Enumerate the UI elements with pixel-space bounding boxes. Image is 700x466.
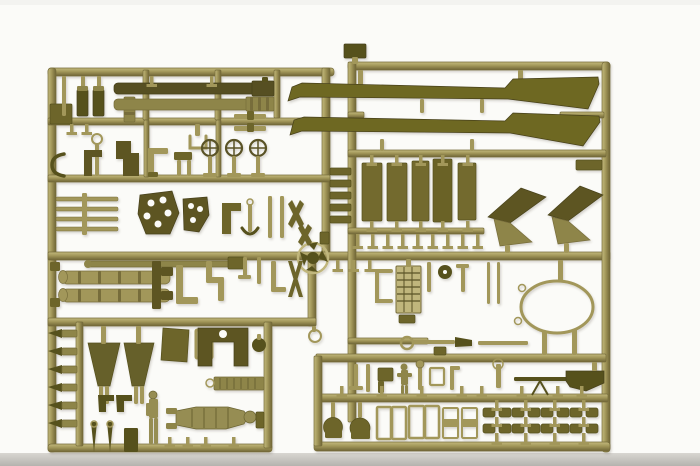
top-tab-stub	[352, 57, 358, 64]
pod-1-band-3	[118, 271, 121, 284]
pod-1-band-4	[138, 271, 141, 284]
small-pin	[427, 262, 431, 292]
ammo-panel-4	[433, 159, 452, 222]
standing-figure-leg-1	[149, 418, 153, 444]
n-clips-rail4-bar-2	[417, 394, 428, 397]
pod-2-band-4	[138, 289, 141, 302]
rowb-figure-torso	[401, 370, 408, 385]
turret-pin	[496, 364, 501, 388]
bottom-rail-clips-stub-0	[168, 437, 172, 445]
standing-figure-torso	[149, 399, 158, 418]
gun-barrel-1	[114, 83, 258, 94]
rowb-pin-1-bar	[349, 386, 363, 390]
panel-stubs-bottom-bar-0	[367, 229, 378, 232]
rowb-seat	[378, 368, 393, 381]
n-clips-rail4-bar-6	[553, 394, 564, 397]
panel-stubs-bottom-stub-4	[466, 221, 470, 229]
rowb-figure-leg-2	[405, 385, 408, 394]
blade-stub-3	[420, 99, 424, 113]
t-clips-subrail-stub-7	[461, 234, 465, 246]
ball-stub	[257, 334, 261, 340]
small-cylinder-band-2	[124, 112, 135, 115]
panel-stubs-top-stub-0	[370, 155, 374, 163]
mount-plate	[50, 104, 72, 124]
gun-barrel-1-sight	[262, 77, 268, 82]
ball-part	[252, 338, 266, 352]
missile-1-body	[62, 330, 77, 337]
rowb-pinball-ball	[416, 360, 424, 368]
hub-core	[307, 252, 319, 264]
console-a-hole-3	[165, 210, 172, 217]
left-frame-top-rail	[48, 68, 334, 76]
track-pad-stubs-3-bar-1	[521, 442, 532, 445]
pod-bracket-step-1	[161, 267, 173, 276]
t-clips-subrail-bar-4	[413, 246, 424, 249]
track-pad-stubs-2-stub-3	[582, 417, 586, 424]
yoke-hole	[219, 330, 227, 338]
bottom-rail-clips-bar-1	[183, 445, 194, 448]
panel-stubs-top-bar-2	[416, 163, 427, 166]
dark-slab	[124, 428, 138, 452]
track-pad-stubs-1-bar-1	[521, 408, 532, 411]
rowb-figure-arms	[397, 373, 412, 377]
panel-stubs-top-bar-1	[392, 163, 403, 166]
track-pad-stubs-1-stub-3	[582, 400, 586, 408]
right-rail-tab	[576, 160, 602, 170]
shock-1-body	[77, 90, 88, 116]
u-hanger-stub	[195, 124, 200, 136]
row4-lbracket-h	[271, 287, 286, 292]
prone-figure-tab	[256, 412, 264, 428]
track-pad-stubs-2-bar-2	[550, 424, 561, 427]
missile-5-body	[62, 402, 77, 409]
track-pad-stubs-2-stub-2	[553, 417, 557, 424]
track-pad-stubs-3-stub-3	[582, 433, 586, 442]
n-clips-rail4-bar-7	[577, 394, 588, 397]
hub-side-box	[320, 232, 329, 244]
n-clips-central-stub-2	[368, 260, 372, 269]
console-a-hole-1	[148, 200, 155, 207]
ammo-bar-1	[330, 168, 351, 175]
ammo-panel-1	[362, 163, 382, 221]
bottom-rail-clips-bar-2	[201, 445, 212, 448]
ring-pin-rod	[95, 144, 99, 176]
right-frame-bottom-rail	[314, 442, 610, 451]
panel-stubs-top-stub-1	[395, 155, 399, 163]
ammo-box	[161, 328, 189, 362]
shock-1-cap	[77, 86, 88, 91]
t-clips-subrail-bar-7	[458, 246, 469, 249]
rowb-figure-leg-1	[401, 385, 404, 394]
pod-bracket	[152, 261, 161, 309]
left-vertical-2	[215, 70, 221, 120]
n-clips-central-stub-0	[336, 260, 340, 269]
n-clips-central-bar-2	[365, 269, 376, 272]
track-pad-stubs-3-bar-3	[579, 442, 590, 445]
right-frame-left-rail-lower	[314, 356, 322, 446]
pod-bracket-step-2	[161, 291, 173, 300]
left-frame-rail-4	[48, 318, 316, 326]
track-pad-stubs-2-bar-0	[492, 424, 503, 427]
barrel-stubs-stub-1	[210, 76, 214, 84]
pad-1-base	[325, 429, 342, 438]
funnel-2-rod	[136, 326, 141, 344]
gun-barrel-1-muzzle	[252, 81, 274, 96]
console-b-hole-2	[197, 206, 203, 212]
track-pad-stubs-1-bar-0	[492, 408, 503, 411]
n-clips-rail4-stub-4	[480, 386, 484, 394]
ammo-bar-5	[330, 216, 351, 223]
sight-knob-1	[247, 111, 254, 120]
bottom-rail-clips-stub-2	[204, 437, 208, 445]
t-clips-subrail-stub-4	[416, 234, 420, 246]
banded-part-2-band	[462, 419, 477, 427]
prone-figure-body	[176, 407, 248, 429]
n-clips-rail4-stub-2	[420, 386, 424, 394]
ammo-bar-4	[330, 204, 351, 211]
row4-tpin-b	[257, 257, 261, 284]
panel-stubs-bottom-stub-2	[419, 221, 423, 229]
ammo-bar-3	[330, 192, 351, 199]
t-part-v	[461, 264, 465, 292]
left-frame-rail-2	[48, 118, 330, 125]
t-clips-subrail-stub-2	[386, 234, 390, 246]
handwheel-2-base	[227, 173, 241, 177]
track-pad-stubs-3-bar-2	[550, 442, 561, 445]
gun-barrel-2-band-3	[266, 97, 269, 111]
panel-stubs-bottom-stub-0	[370, 221, 374, 229]
console-b-hole-3	[190, 217, 196, 223]
ammo-panel-2	[387, 163, 407, 221]
t-clips-subrail-stub-5	[431, 234, 435, 246]
t-clips-subrail-bar-8	[473, 246, 484, 249]
panel-stubs-bottom-stub-3	[441, 221, 445, 229]
bottom-rail-clips-bar-3	[229, 445, 240, 448]
shock-2-cap	[93, 86, 104, 91]
track-pad-stubs-1-bar-2	[550, 408, 561, 411]
ring-rod-box	[434, 347, 446, 355]
n-clips-rail4-bar-5	[517, 394, 528, 397]
blade-stub-4	[480, 99, 484, 113]
left-vertical-3	[274, 70, 280, 118]
zigzag-pipe-3	[218, 281, 224, 301]
track-pad-stubs-2-bar-1	[521, 424, 532, 427]
track-pad-stubs-2-stub-1	[524, 417, 528, 424]
mg-stub	[592, 362, 597, 371]
track-pad-stubs-3-stub-2	[553, 433, 557, 442]
ammo-panel-3	[412, 161, 429, 221]
console-a-hole-4	[155, 221, 162, 228]
prone-figure-head	[244, 411, 256, 423]
row2-stubs-stub-1	[85, 124, 89, 132]
track-pad-stubs-1-stub-1	[524, 400, 528, 408]
pod-1-cap	[59, 271, 68, 284]
console-a-hole-2	[160, 197, 167, 204]
n-clips-rail4-stub-3	[460, 386, 464, 394]
t-clips-subrail-bar-2	[383, 246, 394, 249]
standing-figure-leg-2	[154, 418, 158, 444]
t-clips-subrail-bar-3	[398, 246, 409, 249]
blade-stub-6	[470, 139, 474, 151]
rail-tab-1	[50, 262, 60, 271]
pad-2-stub	[358, 402, 362, 418]
radiator-box	[399, 315, 415, 323]
handwheel-1-base	[203, 173, 217, 177]
top-tab	[344, 44, 366, 58]
barrel-stubs-bar-0	[147, 84, 158, 87]
missile-4-body	[62, 384, 77, 391]
funnel-2-leg-1	[134, 386, 138, 404]
row4-tpin-a-bar	[238, 275, 251, 279]
hoop-stub-top	[558, 260, 563, 282]
mg-barrel	[514, 377, 568, 381]
track-pad-stubs-1-stub-0	[495, 400, 499, 408]
t-clips-subrail-stub-6	[446, 234, 450, 246]
n-clips-central-bar-0	[333, 269, 344, 272]
t-clips-subrail-bar-6	[443, 246, 454, 249]
n-clips-rail4-stub-0	[340, 386, 344, 394]
row4-lbracket-v	[271, 261, 276, 291]
pod-2-band-1	[78, 289, 81, 302]
missile-rail	[76, 322, 83, 446]
row2-stubs-bar-0	[67, 132, 78, 135]
blade-stub-5	[380, 139, 384, 151]
panel-stubs-top-bar-3	[438, 163, 449, 166]
right-frame-right-rail	[602, 62, 610, 452]
missile-3-body	[62, 366, 77, 373]
l-pipe-h	[176, 297, 198, 304]
winglet-1-stub	[505, 245, 510, 253]
row3-rod-a	[268, 196, 272, 238]
barrel-stubs-stub-0	[150, 76, 154, 84]
right-frame-top-rail	[348, 62, 610, 70]
bottom-rail-clips-bar-0	[165, 445, 176, 448]
sprue-photo	[0, 0, 700, 466]
row3-rod-b	[280, 196, 284, 238]
ammo-bar-2	[330, 180, 351, 187]
track-pad-stubs-1-stub-2	[553, 400, 557, 408]
n-clips-rail4-bar-4	[477, 394, 488, 397]
panel-stubs-top-stub-4	[466, 155, 470, 163]
hang-pin	[62, 76, 66, 116]
part-d-leg-2	[187, 160, 191, 176]
t-part-h	[456, 264, 469, 268]
sprue-illustration	[0, 0, 700, 466]
funnel-2-leg-2	[140, 386, 144, 404]
n-clips-rail4-bar-3	[457, 394, 468, 397]
rowb-bracket-h	[450, 366, 460, 370]
n-clips-rail4-stub-5	[520, 386, 524, 394]
track-pad-stubs-3-stub-0	[495, 433, 499, 442]
t-clips-subrail-bar-1	[368, 246, 379, 249]
left-frame-right-rail-lower	[264, 322, 272, 448]
barrel-stubs-bar-1	[207, 84, 218, 87]
left-vertical-1	[143, 70, 149, 120]
t-clips-subrail-stub-3	[401, 234, 405, 246]
standing-figure-arm	[146, 403, 150, 416]
row2-stubs-bar-1	[82, 132, 93, 135]
rowb-pin-2	[366, 364, 370, 392]
bottom-rail-clips-stub-3	[232, 437, 236, 445]
panel-stubs-top-bar-4	[463, 163, 474, 166]
pod-1-band-2	[98, 271, 101, 284]
bottom-rail-clips-stub-1	[186, 437, 190, 445]
blade-mid-rail-left	[348, 112, 364, 118]
missile-2-body	[62, 348, 77, 355]
photo-top-strip	[0, 0, 700, 5]
t-clips-subrail-stub-1	[371, 234, 375, 246]
prone-figure-arm-2	[166, 423, 177, 429]
n-clips-rail4-bar-1	[377, 394, 388, 397]
hoop-stub-2	[572, 329, 577, 355]
winglet-2-stub	[564, 243, 569, 253]
n-clips-rail4-stub-6	[556, 386, 560, 394]
n-clips-rail4-stub-7	[580, 386, 584, 394]
ring-rod	[413, 340, 455, 344]
coil-stub	[312, 326, 316, 332]
t-clips-subrail-bar-5	[428, 246, 439, 249]
prone-figure-arm-1	[166, 408, 177, 414]
banded-part-1-band	[443, 419, 458, 427]
photo-bottom-strip	[0, 453, 700, 466]
rail-tab-2	[50, 298, 60, 307]
pod-1-band-1	[78, 271, 81, 284]
gun-barrel-2-band-2	[258, 97, 261, 111]
anchor-rod	[248, 204, 252, 232]
funnel-1-rod	[101, 326, 106, 344]
shock-2-body	[93, 90, 104, 116]
panel-stubs-top-stub-2	[419, 155, 423, 163]
left-frame-rail-3	[48, 175, 330, 182]
panel-stubs-top-stub-3	[441, 155, 445, 163]
panel-stubs-top-bar-0	[367, 163, 378, 166]
thin-tube-cap	[84, 260, 92, 268]
n-clips-rail4-stub-1	[380, 386, 384, 394]
n-clips-central-stub-1	[352, 260, 356, 269]
long-pin-b	[497, 262, 500, 304]
gun-barrel-2-band-1	[250, 97, 253, 111]
thin-tube-end	[228, 257, 244, 269]
long-pin-a	[487, 262, 490, 304]
console-b-hole-1	[188, 203, 194, 209]
part-d	[174, 152, 192, 160]
bracket-c-v	[148, 148, 154, 176]
t-clips-subrail-bar-0	[353, 246, 364, 249]
rowb-figure-head	[401, 364, 408, 371]
strap-part	[214, 377, 264, 390]
n-clips-rail4-bar-0	[337, 394, 348, 397]
part-d-leg-1	[177, 160, 181, 176]
hoop-stub-1	[542, 331, 547, 355]
t-clips-subrail-stub-0	[356, 234, 360, 246]
ammo-panel-5	[458, 163, 476, 220]
disc-hole	[443, 270, 447, 274]
pod-2-band-3	[118, 289, 121, 302]
missile-6-body	[62, 420, 77, 427]
right-frame-rail-2	[348, 150, 606, 157]
panel-stubs-bottom-bar-4	[463, 229, 474, 232]
n-clips-central-bar-1	[349, 269, 360, 272]
pod-2-cap	[59, 289, 68, 302]
right-frame-rail-3	[316, 354, 606, 362]
track-pad-stubs-2-bar-3	[579, 424, 590, 427]
console-a-hole-5	[144, 213, 151, 220]
panel-stubs-bottom-stub-1	[395, 221, 399, 229]
track-pad-stubs-3-bar-0	[492, 442, 503, 445]
bracket-c-foot	[148, 172, 158, 177]
standing-figure-head	[149, 391, 157, 399]
zigzag-pipe-1	[206, 261, 212, 279]
track-pad-stubs-3-stub-1	[524, 433, 528, 442]
gun-barrel-2	[114, 99, 258, 110]
thin-rod-2	[478, 341, 528, 345]
t-clips-subrail-stub-8	[476, 234, 480, 246]
radiator-stub	[406, 259, 411, 267]
track-pad-stubs-1-bar-3	[579, 408, 590, 411]
panel-stubs-bottom-bar-1	[392, 229, 403, 232]
pad-1-stub	[331, 402, 335, 419]
track-pad-stubs-2-stub-0	[495, 417, 499, 424]
row2-stubs-stub-0	[70, 124, 74, 132]
panel-stubs-bottom-bar-3	[438, 229, 449, 232]
panel-stubs-bottom-bar-2	[416, 229, 427, 232]
pod-2-band-2	[98, 289, 101, 302]
console-a	[138, 191, 179, 234]
handwheel-3-base	[251, 173, 265, 177]
spring-spine	[82, 193, 87, 235]
pad-2-base	[351, 430, 370, 439]
sight-knob-2	[247, 123, 254, 132]
